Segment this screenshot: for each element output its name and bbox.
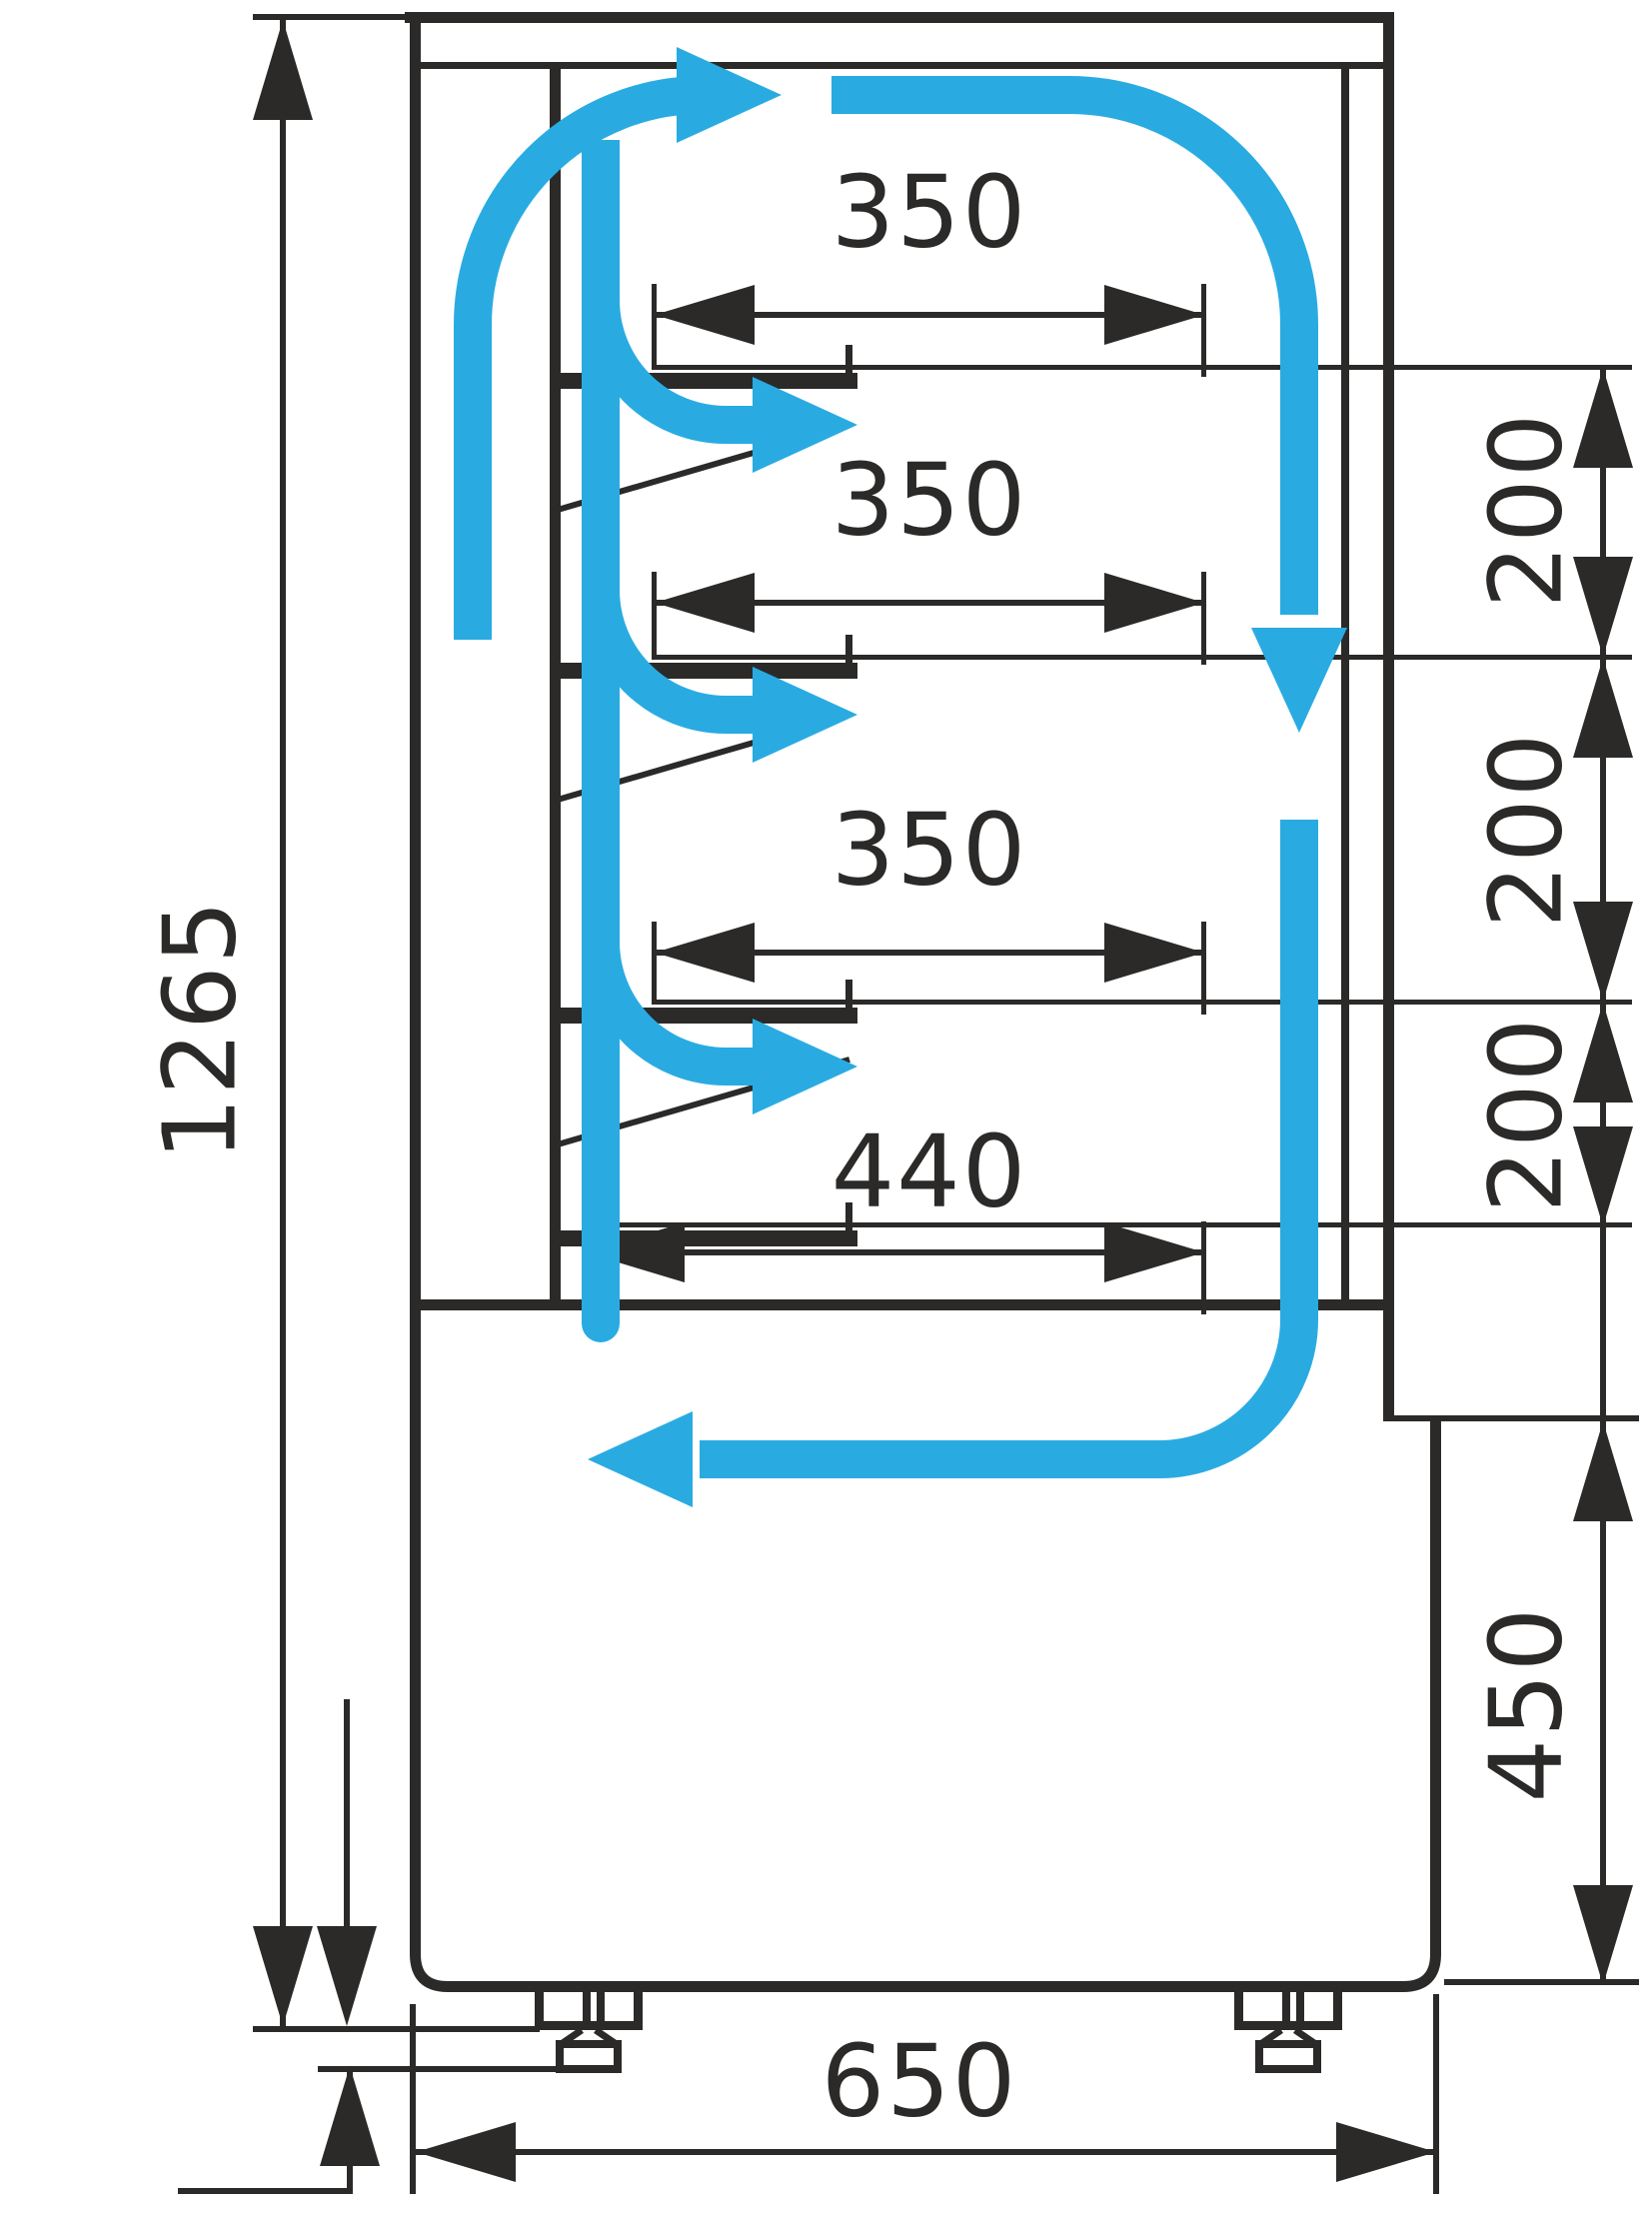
dim-line	[416, 2149, 1436, 2155]
glass-wall-outer	[1383, 12, 1394, 1421]
dim-arrow-left-icon	[655, 573, 755, 633]
shelf-2-front-lip	[845, 635, 852, 663]
dim-arrow-up-icon	[1573, 1421, 1633, 1521]
airflow-arrow-right-icon	[753, 1019, 857, 1114]
dim-arrow-down-icon	[253, 1926, 313, 2026]
base-depth-label: 650	[822, 2023, 1018, 2140]
foot-right	[1234, 1992, 1342, 2069]
airflow-arrow-right-icon	[677, 47, 782, 143]
diagram-page: 1265 350 350 350	[0, 0, 1652, 2213]
ext-line	[1201, 572, 1206, 665]
dim-arrow-right-icon	[1104, 285, 1204, 345]
shelf-gap-3-label: 200	[1468, 1017, 1585, 1213]
dim-arrow-up-icon	[253, 20, 313, 120]
shelf-3-front-lip	[845, 980, 852, 1008]
foot-left	[535, 1992, 643, 2069]
ext-line	[1201, 1221, 1206, 1314]
foot-left-pad	[560, 2044, 618, 2069]
shelf-1-depth-label: 350	[831, 154, 1028, 271]
foot-right-pad	[1259, 2044, 1317, 2069]
ext-line	[652, 572, 657, 658]
glass-wall-inner	[1341, 62, 1349, 1304]
inner-duct-wall	[550, 62, 561, 1304]
dim-arrow-right-icon	[1104, 573, 1204, 633]
dim-arrow-left-icon	[655, 285, 755, 345]
ext-line	[1201, 284, 1206, 377]
bottom-platform-depth-label: 440	[831, 1113, 1028, 1230]
dim-arrow-right-icon	[1336, 2122, 1436, 2182]
base-bottom-ext-line	[1444, 1979, 1639, 1985]
dim-arrow-left-icon	[655, 923, 755, 983]
dim-shelf-1-depth: 350	[652, 154, 1206, 378]
left-wall	[410, 12, 421, 1305]
dim-arrow-right-icon	[1104, 1222, 1204, 1282]
shelf-1-front-lip	[845, 345, 852, 373]
dim-shelf-3-depth: 350	[652, 792, 1206, 1016]
display-case-diagram: 1265 350 350 350	[0, 0, 1652, 2213]
overall-height-label: 1265	[142, 899, 259, 1161]
dimensions: 1265 350 350 350	[142, 20, 1634, 2194]
dim-shelf-2-depth: 350	[652, 442, 1206, 666]
ext-line	[652, 922, 657, 1003]
shelf-3-depth-label: 350	[831, 792, 1028, 909]
shelf-1-top-line	[652, 365, 1632, 370]
top-extension-line	[253, 14, 415, 20]
ext-line	[410, 2004, 416, 2194]
shelf-gap-2-label: 200	[1468, 732, 1585, 929]
foot-top-ref-line	[253, 2026, 540, 2032]
shelf-3-top-line	[652, 1000, 1632, 1005]
dim-arrow-left-icon	[416, 2122, 516, 2182]
dim-arrow-down-icon	[317, 1926, 377, 2026]
dim-line	[280, 20, 286, 2026]
shelf-2-depth-label: 350	[831, 442, 1028, 559]
top-panel-inner	[421, 62, 1389, 69]
dim-bottom-platform-depth: 440	[582, 1113, 1206, 1315]
shelf-2-top-line	[652, 655, 1632, 660]
dim-arrow-right-icon	[1104, 923, 1204, 983]
dim-overall-height: 1265	[142, 20, 314, 2026]
leader-line	[178, 2188, 353, 2194]
dim-right-column: 200 200 200 450	[1468, 368, 1634, 1985]
dim-arrow-down-icon	[1573, 1885, 1633, 1985]
dim-line	[344, 1699, 350, 1929]
airflow-arrow-left-icon	[588, 1411, 693, 1507]
airflow-arrow-down-icon	[1251, 628, 1347, 733]
floor-ref-line	[318, 2066, 618, 2072]
dim-arrow-up-icon	[320, 2066, 380, 2166]
ext-line	[1201, 922, 1206, 1015]
airflow-riser-cap	[582, 1304, 620, 1342]
top-panel-outer	[405, 12, 1394, 23]
ext-line	[652, 284, 657, 368]
shelf-gap-1-label: 200	[1468, 412, 1585, 609]
airflow-arrow-right-icon	[753, 667, 857, 763]
base-top-panel	[421, 1299, 1389, 1310]
ext-line	[1433, 1994, 1439, 2194]
base-height-label: 450	[1468, 1606, 1585, 1803]
